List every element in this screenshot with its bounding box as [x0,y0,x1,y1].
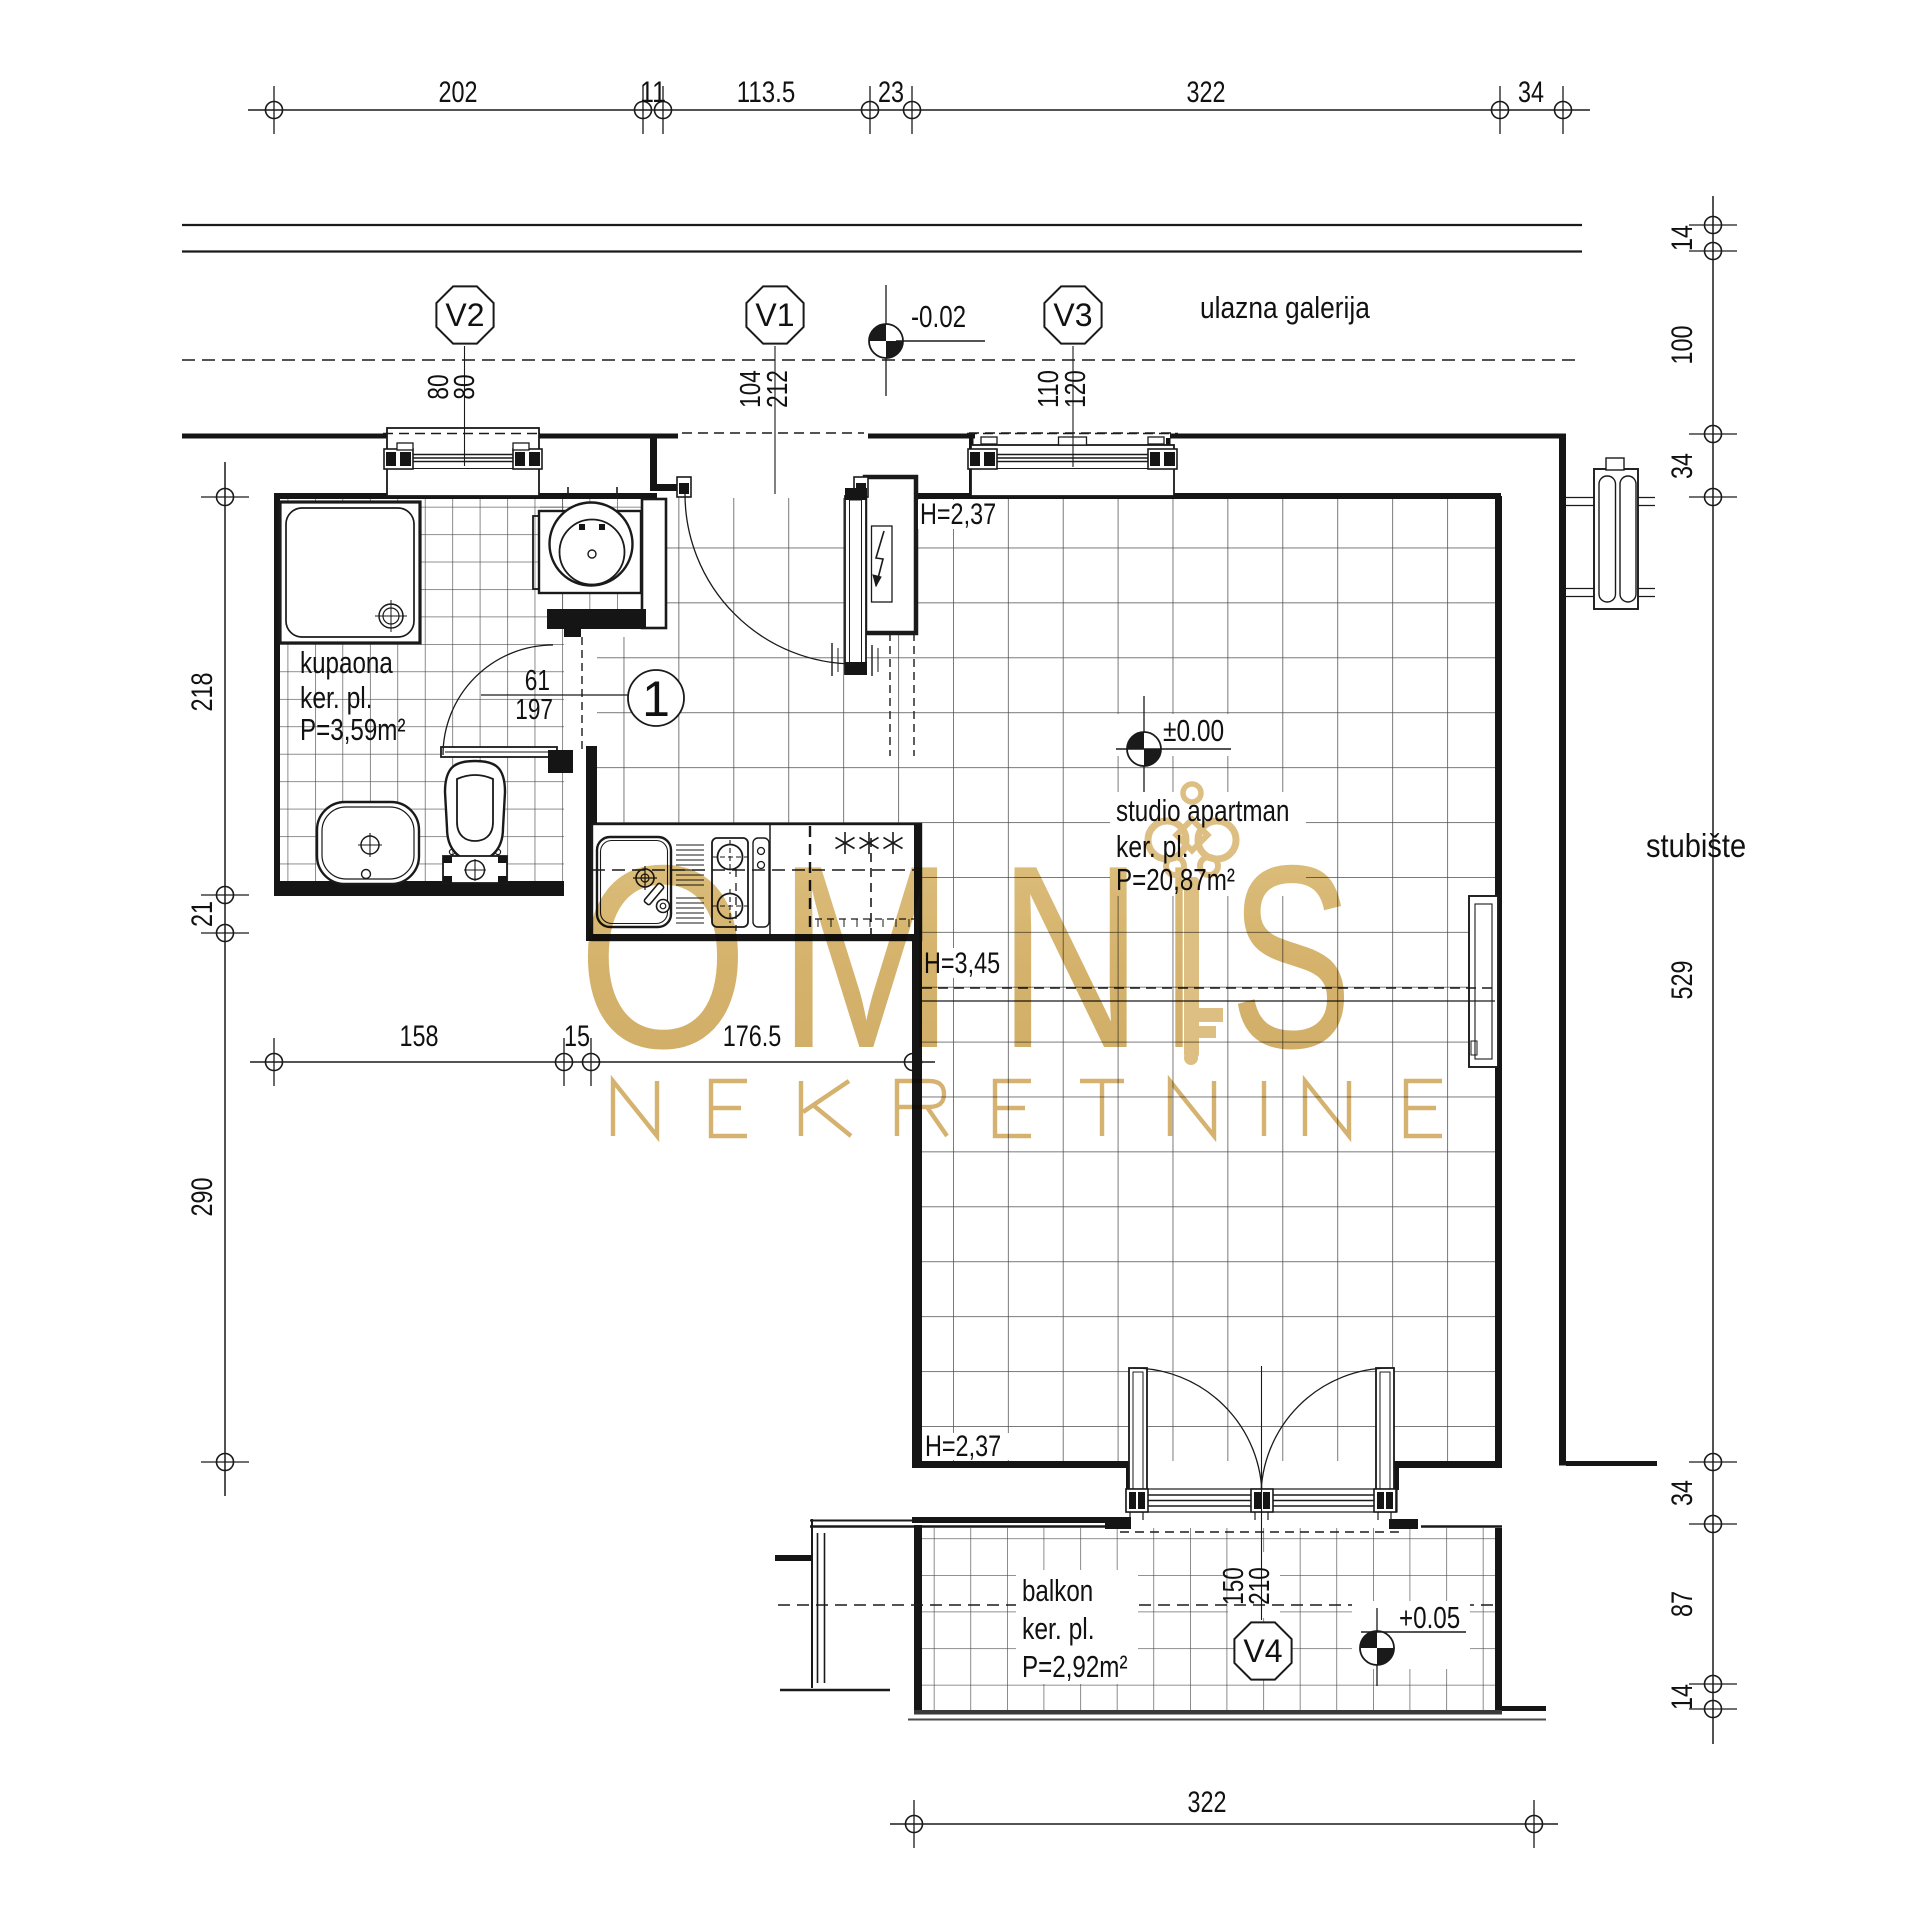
svg-text:H=2,37: H=2,37 [925,1430,1001,1463]
svg-text:ker. pl.: ker. pl. [1022,1611,1095,1646]
svg-text:1: 1 [642,671,670,727]
svg-text:34: 34 [1518,76,1544,109]
svg-text:212: 212 [762,370,794,408]
svg-text:100: 100 [1666,326,1699,365]
svg-text:S: S [1230,812,1353,1103]
svg-text:11: 11 [640,76,666,109]
svg-text:23: 23 [878,76,904,109]
svg-text:61: 61 [525,665,550,697]
svg-text:N: N [998,812,1143,1103]
svg-text:21: 21 [186,901,219,927]
svg-text:120: 120 [1060,370,1092,408]
svg-text:529: 529 [1666,961,1699,1000]
svg-text:P=3,59m²: P=3,59m² [300,712,406,747]
svg-text:stubište: stubište [1646,827,1746,864]
svg-text:218: 218 [186,673,219,712]
svg-text:14: 14 [1666,1684,1699,1710]
svg-text:80: 80 [449,374,481,399]
svg-text:-0.02: -0.02 [911,299,966,334]
svg-text:O: O [578,812,749,1103]
svg-text:322: 322 [1188,1786,1227,1819]
svg-text:14: 14 [1666,225,1699,251]
svg-text:H=2,37: H=2,37 [920,498,996,531]
svg-text:V4: V4 [1243,1633,1282,1669]
svg-text:34: 34 [1666,453,1699,479]
svg-text:ulazna galerija: ulazna galerija [1200,290,1371,325]
svg-text:210: 210 [1244,1567,1276,1605]
svg-text:197: 197 [515,694,553,726]
svg-text:34: 34 [1666,1480,1699,1506]
svg-text:322: 322 [1187,76,1226,109]
svg-text:M: M [778,812,955,1103]
svg-text:kupaona: kupaona [300,645,393,680]
svg-text:V3: V3 [1053,297,1092,333]
svg-text:V1: V1 [755,297,794,333]
svg-text:ker. pl.: ker. pl. [300,680,373,715]
svg-text:P=2,92m²: P=2,92m² [1022,1649,1128,1684]
svg-text:±0.00: ±0.00 [1163,713,1224,748]
svg-text:290: 290 [186,1178,219,1217]
svg-text:158: 158 [400,1020,439,1053]
svg-text:113.5: 113.5 [737,76,796,109]
svg-text:balkon: balkon [1022,1573,1093,1608]
svg-text:+0.05: +0.05 [1399,1600,1460,1635]
svg-text:202: 202 [439,76,478,109]
svg-text:87: 87 [1666,1591,1699,1617]
svg-text:V2: V2 [445,297,484,333]
